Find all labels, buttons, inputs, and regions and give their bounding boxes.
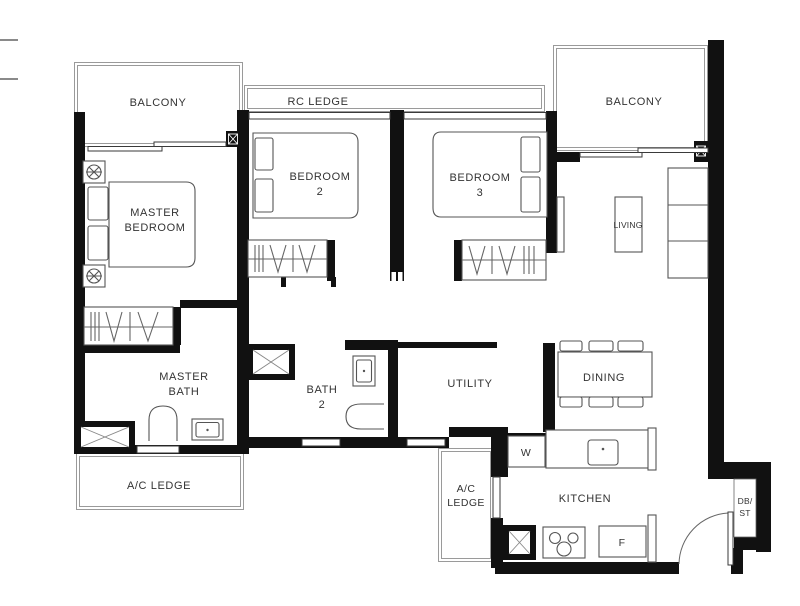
utility-label: UTILITY [447, 378, 492, 390]
shaft-icon [226, 131, 240, 147]
room-dining: DINING [558, 341, 652, 407]
window-bath2 [302, 439, 340, 446]
tick-mark [0, 78, 18, 80]
wall-bed2-bed3 [390, 110, 404, 281]
sofa-icon [668, 168, 708, 278]
sliding-door-living-balcony [580, 153, 642, 158]
wall-utility-left [388, 341, 398, 437]
pillow-icon [521, 137, 540, 172]
dining-label: DINING [583, 372, 625, 384]
sink-icon [192, 419, 223, 440]
pillow-icon [88, 226, 108, 260]
counter-back-line [508, 433, 546, 436]
master-bath-label-line1: MASTER [159, 371, 208, 383]
kitchen-label: KITCHEN [559, 493, 611, 505]
window-masterbath [137, 446, 179, 453]
pillow-icon [88, 187, 108, 220]
wall-cap [398, 272, 403, 281]
wall-kitchen-left-lower [491, 518, 503, 568]
wall-dbst-right [756, 470, 771, 552]
toilet-icon [346, 404, 384, 429]
bath2-label-line2: 2 [319, 399, 326, 411]
utility-sliding-door [397, 342, 497, 348]
bedroom2-label-line2: 2 [317, 186, 324, 198]
chair-icon [589, 397, 613, 407]
window-bedroom2 [249, 113, 390, 120]
door-leaf [728, 512, 733, 565]
pillow-icon [255, 138, 273, 170]
window-bedroom3 [404, 113, 546, 120]
window-utility [407, 439, 445, 446]
balcony-right-label: BALCONY [606, 96, 663, 108]
wardrobe-bracket-bed3 [454, 240, 462, 281]
shower-icon [247, 344, 295, 380]
counter-end-panel [648, 428, 656, 470]
wall-right-exterior [708, 40, 724, 467]
ac-ledge-kitchen-label-line2: LEDGE [447, 497, 485, 509]
chair-icon [560, 397, 582, 407]
living-label: LIVING [613, 220, 642, 230]
nightstand-lamp-icon [83, 161, 105, 183]
dbst-label-line2: ST [739, 508, 750, 518]
ac-ledge-left-label: A/C LEDGE [127, 480, 191, 492]
chair-icon [589, 341, 613, 351]
wall-masterbath-top [84, 345, 180, 353]
wall-dining-left [543, 343, 555, 432]
tick-mark [0, 39, 18, 41]
bath2-label-line1: BATH [307, 384, 338, 396]
sink-icon [588, 440, 618, 465]
wardrobe-icon [462, 240, 546, 280]
hob-icon [543, 527, 585, 558]
fridge-icon: F [599, 526, 646, 557]
shaft-icon [503, 525, 536, 560]
wall-bed3-living [546, 111, 557, 253]
room-utility: UTILITY [447, 378, 492, 390]
nightstand-lamp-icon [83, 265, 105, 287]
chair-icon [618, 341, 643, 351]
window-kitchen-ac [493, 477, 500, 518]
sliding-door-master-balcony [154, 142, 226, 147]
wall-living-balcony-stub [556, 152, 580, 162]
master-bath-label-line2: BATH [169, 386, 200, 398]
fridge-label: F [619, 537, 626, 549]
master-bedroom-label-line2: BEDROOM [124, 222, 185, 234]
ac-ledge-kitchen-label-line1: A/C [457, 483, 476, 495]
wardrobe-icon [84, 307, 173, 345]
dbst-label-line1: DB/ [738, 496, 753, 506]
toilet-icon [149, 406, 177, 441]
washer-label: W [521, 447, 531, 459]
sliding-door-master-balcony [88, 147, 162, 152]
shower-icon [75, 421, 135, 453]
floor-plan-canvas: MASTER BEDROOM BEDROOM 2 BEDROOM 3 [0, 0, 800, 606]
wall-master-bed2 [237, 110, 249, 454]
pillow-icon [255, 179, 273, 212]
counter-end-panel [648, 515, 656, 562]
wall-cap [392, 272, 397, 281]
bedroom2-label-line1: BEDROOM [289, 171, 350, 183]
chair-icon [618, 397, 643, 407]
door-jamb-tick [281, 277, 286, 287]
bedroom3-label-line2: 3 [477, 187, 484, 199]
floor-plan-page: MASTER BEDROOM BEDROOM 2 BEDROOM 3 [0, 0, 800, 606]
chair-icon [560, 341, 582, 351]
wall-bottom-kitchen [495, 562, 679, 574]
sliding-door-living-balcony [638, 148, 708, 153]
rc-ledge-label: RC LEDGE [287, 96, 348, 108]
wall-masterbedroom-south [180, 300, 240, 308]
tv-console-icon [557, 197, 564, 252]
balcony-left-label: BALCONY [130, 97, 187, 109]
wardrobe-bracket-bed2 [327, 240, 335, 281]
wardrobe-bracket-master [173, 307, 181, 345]
wall-kitchen-left-upper [491, 427, 508, 477]
bedroom3-label-line1: BEDROOM [449, 172, 510, 184]
pillow-icon [521, 177, 540, 212]
background [0, 0, 800, 606]
sink-icon [353, 356, 375, 386]
master-bedroom-label-line1: MASTER [130, 207, 179, 219]
washer-icon: W [508, 436, 545, 467]
wardrobe-icon [248, 240, 327, 277]
